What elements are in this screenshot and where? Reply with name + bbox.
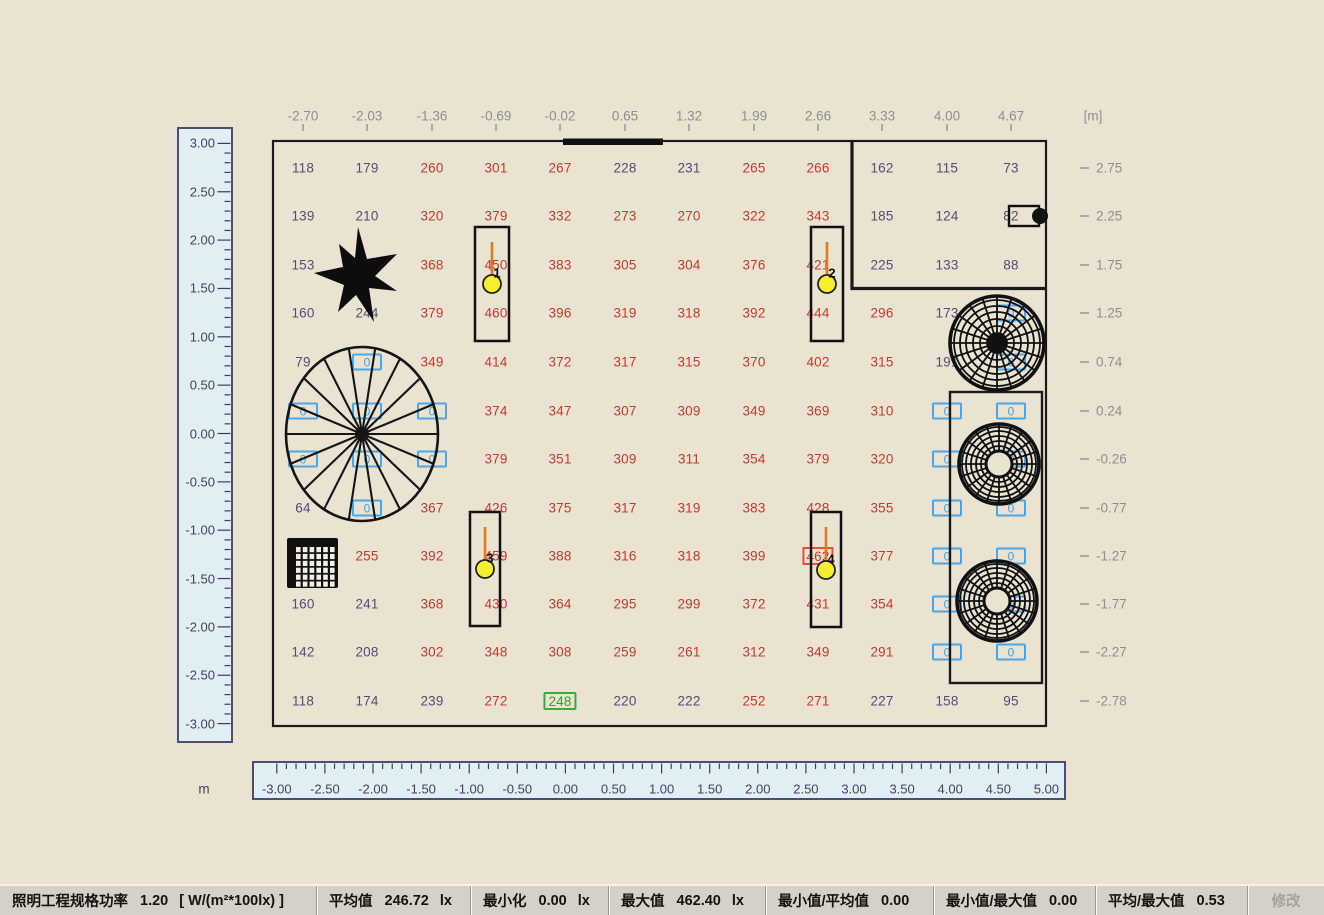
grid-value: 162 [870, 161, 893, 176]
grid-value: 231 [677, 161, 700, 176]
horizontal-ruler-label: 5.00 [1034, 782, 1059, 797]
horizontal-ruler-label: 4.50 [986, 782, 1011, 797]
grid-value: 0 [352, 500, 382, 517]
lighting-calc-window: m [m] 1181792603012672282312652661621157… [0, 0, 1324, 915]
grid-value: 372 [548, 355, 571, 370]
horizontal-ruler-label: 1.00 [649, 782, 674, 797]
grid-value: 266 [806, 161, 829, 176]
grid-value: 414 [484, 355, 507, 370]
grid-value: 173 [935, 306, 958, 321]
horizontal-ruler-label: -2.50 [310, 782, 340, 797]
vertical-ruler-label: -3.00 [185, 716, 215, 731]
grid-value: 139 [291, 209, 314, 224]
grid-value: 0 [996, 403, 1026, 420]
grid-value: 252 [742, 694, 765, 709]
grid-value: 379 [484, 209, 507, 224]
grid-value: 95 [1003, 694, 1018, 709]
grid-value: 0 [996, 451, 1026, 468]
grid-value: 309 [677, 404, 700, 419]
top-axis-label: 4.67 [998, 109, 1024, 124]
right-axis-label: -1.27 [1096, 549, 1127, 564]
grid-value: 310 [870, 404, 893, 419]
status-value: 246.72 [385, 893, 429, 909]
grid-value: 372 [742, 597, 765, 612]
grid-value: 402 [806, 355, 829, 370]
right-axis-label: -2.78 [1096, 694, 1127, 709]
grid-value: 318 [677, 549, 700, 564]
status-label: 最小值/最大值 [946, 890, 1037, 911]
grid-value: 227 [870, 694, 893, 709]
grid-value: 174 [355, 694, 378, 709]
horizontal-ruler-label: -3.00 [262, 782, 292, 797]
grid-value: 319 [677, 501, 700, 516]
top-axis-label: -2.70 [288, 109, 319, 124]
grid-value: 267 [548, 161, 571, 176]
grid-value: 354 [742, 452, 765, 467]
vertical-ruler-label: 1.00 [190, 329, 215, 344]
grid-value: 369 [806, 404, 829, 419]
grid-value: 239 [420, 694, 443, 709]
grid-value: 272 [484, 694, 507, 709]
grid-value: 383 [742, 501, 765, 516]
grid-value: 364 [548, 597, 571, 612]
status-min-max-ratio: 最小值/最大值0.00 [934, 886, 1096, 915]
grid-value: 317 [613, 501, 636, 516]
grid-value: 392 [742, 306, 765, 321]
horizontal-ruler-label: -0.50 [502, 782, 532, 797]
grid-value: 347 [548, 404, 571, 419]
edit-button[interactable]: 修改 [1248, 886, 1324, 915]
status-value: 0.00 [881, 893, 909, 909]
top-axis-label: 1.32 [676, 109, 702, 124]
status-value: 1.20 [140, 893, 168, 909]
grid-value: 133 [935, 258, 958, 273]
vertical-ruler-label: -2.50 [185, 668, 215, 683]
right-axis-label: 1.25 [1096, 306, 1122, 321]
grid-value: 160 [291, 597, 314, 612]
grid-value: 376 [742, 258, 765, 273]
grid-value: 368 [420, 597, 443, 612]
horizontal-ruler-label: 0.50 [601, 782, 626, 797]
grid-value: 185 [870, 209, 893, 224]
grid-value: 379 [484, 452, 507, 467]
grid-value: 316 [613, 549, 636, 564]
right-axis-label: -1.77 [1096, 597, 1127, 612]
grid-value: 0 [932, 500, 962, 517]
grid-value: 259 [613, 645, 636, 660]
top-axis-label: -2.03 [352, 109, 383, 124]
grid-value: 208 [355, 645, 378, 660]
grid-value: 88 [1003, 258, 1018, 273]
grid-value: 0 [932, 644, 962, 661]
grid-value: 220 [613, 694, 636, 709]
grid-value: 318 [677, 306, 700, 321]
grid-value: 0 [352, 451, 382, 468]
status-label: 最大值 [621, 890, 665, 911]
grid-value: 305 [613, 258, 636, 273]
grid-value: 0 [996, 548, 1026, 565]
grid-value: 299 [677, 597, 700, 612]
measurement-grid: 1181792603012672282312652661621157313921… [0, 0, 1324, 915]
grid-value: 377 [870, 549, 893, 564]
horizontal-ruler-label: 4.00 [938, 782, 963, 797]
grid-value: 160 [291, 306, 314, 321]
horizontal-ruler-label: 1.50 [697, 782, 722, 797]
grid-value: 265 [742, 161, 765, 176]
status-label: 平均/最大值 [1108, 890, 1185, 911]
status-min-avg-ratio: 最小值/平均值0.00 [766, 886, 934, 915]
vertical-ruler-label: 1.50 [190, 281, 215, 296]
vertical-ruler-label: 0.00 [190, 426, 215, 441]
right-axis-label: 2.75 [1096, 161, 1122, 176]
grid-value: 295 [613, 597, 636, 612]
grid-value: 304 [677, 258, 700, 273]
grid-value: 0 [352, 403, 382, 420]
vertical-ruler-label: 2.50 [190, 184, 215, 199]
status-unit: [ W/(m²*100lx) ] [179, 893, 284, 909]
top-axis-label: -0.02 [545, 109, 576, 124]
right-axis-label: 1.75 [1096, 258, 1122, 273]
grid-value: 460 [484, 306, 507, 321]
grid-value: 0 [996, 500, 1026, 517]
status-unit: lx [440, 893, 452, 909]
top-axis-label: 0.65 [612, 109, 638, 124]
horizontal-ruler-label: 3.50 [889, 782, 914, 797]
grid-value: 392 [420, 549, 443, 564]
horizontal-ruler-label: 2.50 [793, 782, 818, 797]
horizontal-ruler-label: 3.00 [841, 782, 866, 797]
grid-value: 118 [292, 161, 314, 176]
status-unit: lx [578, 893, 590, 909]
vertical-ruler-label: 3.00 [190, 136, 215, 151]
vertical-ruler-label: -1.50 [185, 571, 215, 586]
grid-value: 302 [420, 645, 443, 660]
grid-value: 374 [484, 404, 507, 419]
grid-value: 421 [806, 258, 829, 273]
grid-value: 343 [806, 209, 829, 224]
grid-value: 225 [870, 258, 893, 273]
grid-value: 291 [870, 645, 893, 660]
vertical-ruler-label: -0.50 [185, 474, 215, 489]
horizontal-ruler-label: 2.00 [745, 782, 770, 797]
status-spec-power: 照明工程规格功率1.20[ W/(m²*100lx) ] [0, 886, 317, 915]
grid-value: 82 [1003, 209, 1018, 224]
grid-value: 319 [613, 306, 636, 321]
grid-value: 430 [484, 597, 507, 612]
status-label: 平均值 [329, 890, 373, 911]
grid-value: 375 [548, 501, 571, 516]
grid-value: 228 [613, 161, 636, 176]
grid-value: 317 [613, 355, 636, 370]
grid-value: 0 [288, 451, 318, 468]
grid-value: 191 [935, 355, 958, 370]
top-axis-label: -1.36 [417, 109, 448, 124]
grid-value: 273 [613, 209, 636, 224]
grid-value: 349 [742, 404, 765, 419]
status-minimized: 最小化0.00lx [471, 886, 609, 915]
grid-value: 271 [806, 694, 829, 709]
status-label: 照明工程规格功率 [12, 890, 128, 911]
grid-value: 307 [613, 404, 636, 419]
grid-value: 73 [1003, 161, 1018, 176]
grid-value: 241 [355, 597, 378, 612]
grid-value: 255 [355, 549, 378, 564]
grid-value: 450 [484, 258, 507, 273]
grid-value: 0 [932, 596, 962, 613]
grid-value: 261 [677, 645, 700, 660]
grid-value: 0 [996, 354, 1026, 371]
grid-value: 426 [484, 501, 507, 516]
grid-value: 431 [806, 597, 829, 612]
status-value: 0.00 [1049, 893, 1077, 909]
grid-value: 368 [420, 258, 443, 273]
grid-value: 0 [932, 451, 962, 468]
grid-value: 379 [420, 306, 443, 321]
grid-value: 296 [870, 306, 893, 321]
grid-value: 301 [484, 161, 507, 176]
grid-value: 244 [355, 306, 378, 321]
grid-value: 349 [420, 355, 443, 370]
status-label: 最小值/平均值 [778, 890, 869, 911]
grid-value: 320 [420, 209, 443, 224]
grid-value: 0 [288, 403, 318, 420]
horizontal-ruler-label: 0.00 [553, 782, 578, 797]
grid-value: 354 [870, 597, 893, 612]
grid-value: 153 [291, 258, 314, 273]
grid-value: 388 [548, 549, 571, 564]
top-axis-label: -0.69 [481, 109, 512, 124]
grid-value: 367 [420, 501, 443, 516]
grid-value: 315 [677, 355, 700, 370]
vertical-ruler-label: 2.00 [190, 233, 215, 248]
grid-value: 115 [936, 161, 958, 176]
grid-value: 260 [420, 161, 443, 176]
grid-value: 462 [802, 547, 833, 565]
status-label: 最小化 [483, 890, 527, 911]
grid-value: 210 [355, 209, 378, 224]
status-value: 462.40 [677, 893, 721, 909]
grid-value: 64 [295, 501, 310, 516]
grid-value: 179 [355, 161, 378, 176]
grid-value: 351 [548, 452, 571, 467]
right-axis-label: -0.77 [1096, 501, 1127, 516]
grid-value: 118 [292, 694, 314, 709]
status-average: 平均值246.72lx [317, 886, 471, 915]
grid-value: 158 [935, 694, 958, 709]
grid-value: 0 [932, 403, 962, 420]
grid-value: 124 [935, 209, 958, 224]
grid-value: 320 [870, 452, 893, 467]
grid-value: 428 [806, 501, 829, 516]
vertical-ruler-label: -1.00 [185, 523, 215, 538]
grid-value: 312 [742, 645, 765, 660]
grid-value: 311 [678, 452, 700, 467]
vertical-ruler-label: 0.50 [190, 378, 215, 393]
vertical-ruler-label: -2.00 [185, 619, 215, 634]
grid-value: 348 [484, 645, 507, 660]
right-axis-label: 2.25 [1096, 209, 1122, 224]
grid-value: 248 [543, 692, 576, 710]
status-value: 0.00 [539, 893, 567, 909]
grid-value: 0 [996, 596, 1026, 613]
grid-value: 444 [806, 306, 829, 321]
top-axis-label: 1.99 [741, 109, 767, 124]
status-maximum: 最大值462.40lx [609, 886, 766, 915]
grid-value: 370 [742, 355, 765, 370]
grid-value: 0 [352, 354, 382, 371]
status-bar: 修改 照明工程规格功率1.20[ W/(m²*100lx) ]平均值246.72… [0, 884, 1324, 915]
grid-value: 142 [291, 645, 314, 660]
status-value: 0.53 [1197, 893, 1225, 909]
grid-value: 379 [806, 452, 829, 467]
grid-value: 0 [996, 644, 1026, 661]
top-axis-label: 4.00 [934, 109, 960, 124]
grid-value: 383 [548, 258, 571, 273]
horizontal-ruler-label: -1.50 [406, 782, 436, 797]
grid-value: 355 [870, 501, 893, 516]
right-axis-label: -2.27 [1096, 645, 1127, 660]
grid-value: 309 [613, 452, 636, 467]
status-avg-max-ratio: 平均/最大值0.53 [1096, 886, 1248, 915]
grid-value: 222 [677, 694, 700, 709]
grid-value: 349 [806, 645, 829, 660]
grid-value: 0 [996, 305, 1026, 322]
top-axis-label: 2.66 [805, 109, 831, 124]
grid-value: 308 [548, 645, 571, 660]
grid-value: 459 [484, 549, 507, 564]
grid-value: 396 [548, 306, 571, 321]
horizontal-ruler-label: -1.00 [454, 782, 484, 797]
horizontal-ruler-label: -2.00 [358, 782, 388, 797]
right-axis-label: 0.24 [1096, 404, 1122, 419]
status-unit: lx [732, 893, 744, 909]
grid-value: 79 [295, 355, 310, 370]
grid-value: 0 [417, 451, 447, 468]
right-axis-label: 0.74 [1096, 355, 1122, 370]
grid-value: 332 [548, 209, 571, 224]
right-axis-label: -0.26 [1096, 452, 1127, 467]
grid-value: 0 [417, 403, 447, 420]
grid-value: 0 [932, 548, 962, 565]
grid-value: 315 [870, 355, 893, 370]
grid-value: 270 [677, 209, 700, 224]
top-axis-label: 3.33 [869, 109, 895, 124]
grid-value: 399 [742, 549, 765, 564]
grid-value: 322 [742, 209, 765, 224]
